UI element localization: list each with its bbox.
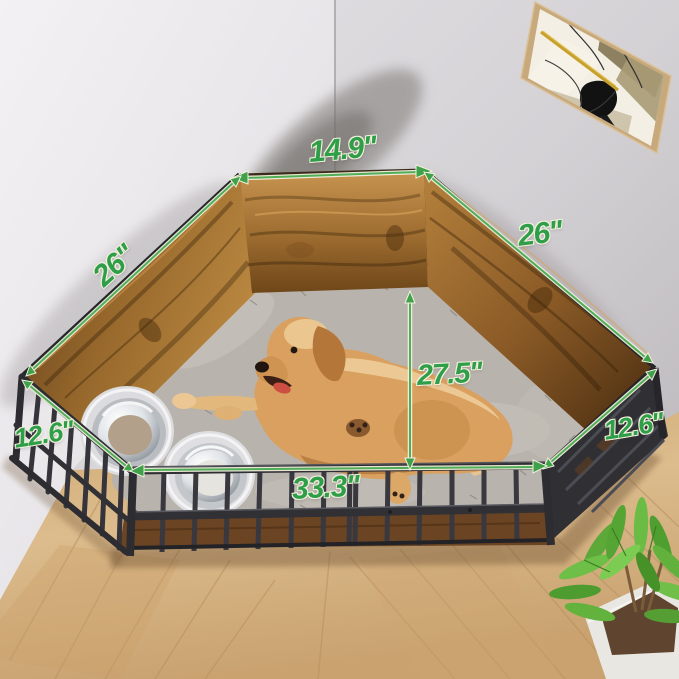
dog-eye [291, 347, 298, 354]
back-wood-panel [240, 170, 428, 293]
water-bowl-right [163, 431, 255, 517]
product-image: 14.9'' 26'' 26'' 12.6'' 12.6'' 27.5'' 33… [0, 0, 679, 679]
dog-nose [255, 362, 269, 373]
dog-hind-thigh [394, 400, 470, 460]
scene [0, 0, 679, 679]
